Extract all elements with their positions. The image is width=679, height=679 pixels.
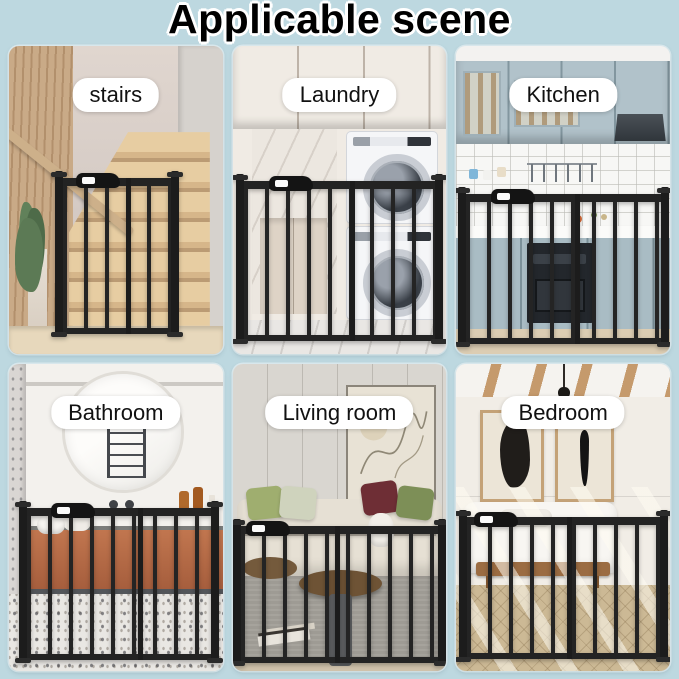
gate-door-edge: [350, 181, 355, 341]
scene-panel-kitchen: Kitchen: [456, 46, 670, 354]
gate-door-edge: [126, 178, 131, 333]
safety-gate: [22, 508, 216, 660]
gate-bars: [466, 199, 661, 341]
gate-right-post: [211, 501, 219, 663]
scene-label: Kitchen: [526, 82, 599, 107]
scene-panel-living-room: Living room: [233, 364, 447, 672]
gate-latch: [491, 189, 535, 204]
toiletry-bottles: [193, 487, 203, 509]
safety-gate: [239, 181, 440, 341]
scene-label: Bedroom: [519, 400, 608, 425]
scene-panel-bathroom: Bathroom: [9, 364, 223, 672]
gate-right-post: [171, 171, 179, 336]
hanging-utensils: [531, 164, 593, 182]
ceiling: [456, 46, 670, 61]
scene-panel-laundry: Laundry: [233, 46, 447, 354]
gate-latch: [51, 503, 95, 518]
gate-bars: [27, 513, 211, 656]
pillow-olive: [395, 484, 435, 520]
gate-door-edge: [335, 526, 340, 663]
gate-left-post: [19, 501, 27, 663]
glass-cabinet-left: [463, 71, 501, 137]
gate-bottom-rail: [20, 654, 218, 660]
gate-right-post: [438, 519, 446, 666]
gate-latch: [246, 521, 290, 536]
hanging-mugs: [469, 169, 478, 179]
gate-latch: [474, 512, 518, 527]
gate-left-post: [233, 519, 241, 666]
safety-gate: [462, 517, 665, 658]
gate-right-post: [660, 510, 668, 661]
potted-plant: [15, 218, 43, 292]
gate-latch: [269, 176, 313, 191]
scene-label: Living room: [283, 400, 397, 425]
safety-gate: [58, 178, 176, 333]
gate-bottom-rail: [460, 653, 667, 659]
page-title: Applicable scene: [0, 0, 679, 43]
pillow-green: [246, 485, 285, 521]
scene-label: Laundry: [300, 82, 380, 107]
abstract-drip: [580, 430, 589, 487]
scene-label-chip: Bathroom: [51, 396, 180, 430]
gate-door-edge: [575, 194, 580, 345]
gate-latch: [76, 173, 120, 188]
gate-bottom-rail: [56, 328, 178, 334]
gate-top-rail: [459, 194, 668, 202]
gate-left-post: [458, 187, 466, 348]
dryer-control-panel: [353, 137, 430, 146]
safety-gate: [461, 194, 666, 345]
poster: Applicable scene stairs: [0, 0, 679, 679]
pendant-lamp: [563, 364, 565, 392]
scene-grid: stairs: [9, 46, 670, 671]
gate-left-post: [55, 171, 63, 336]
gate-bars: [63, 183, 171, 329]
pillow-light: [279, 485, 318, 520]
scene-label-chip: Kitchen: [509, 78, 616, 112]
gate-right-post: [661, 187, 669, 348]
gate-bottom-rail: [459, 338, 668, 344]
gate-bars: [467, 522, 660, 654]
scene-label-chip: stairs: [73, 78, 160, 112]
gate-right-post: [435, 174, 443, 344]
safety-gate: [236, 526, 443, 663]
pillow-maroon: [360, 480, 400, 517]
range-hood: [614, 114, 665, 142]
gate-bottom-rail: [237, 335, 442, 341]
scene-label-chip: Living room: [266, 396, 414, 430]
round-mirror: [62, 371, 183, 492]
scene-panel-bedroom: Bedroom: [456, 364, 670, 672]
gate-top-rail: [20, 508, 218, 516]
scene-label: stairs: [90, 82, 143, 107]
gate-bars: [244, 186, 435, 337]
gate-left-post: [459, 510, 467, 661]
scene-panel-stairs: stairs: [9, 46, 223, 354]
scene-label-chip: Laundry: [283, 78, 397, 112]
scene-label-chip: Bedroom: [502, 396, 625, 430]
gate-door-edge: [138, 508, 143, 660]
gate-top-rail: [237, 181, 442, 189]
gate-left-post: [236, 174, 244, 344]
gate-door-edge: [567, 517, 572, 658]
scene-label: Bathroom: [68, 400, 163, 425]
